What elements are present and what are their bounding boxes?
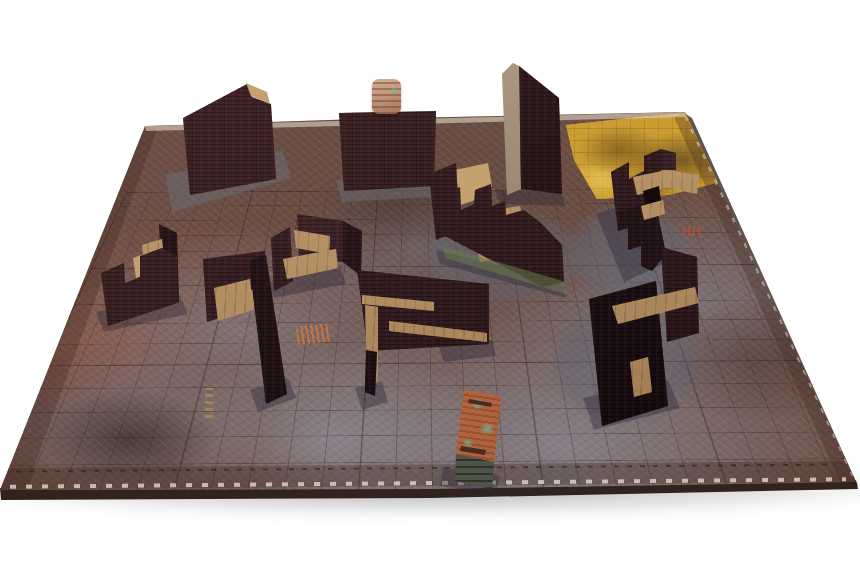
yellow-drip-mark bbox=[205, 388, 213, 418]
small-crate-on-wall bbox=[372, 79, 401, 114]
product-photo bbox=[0, 0, 860, 573]
orange-graffiti-mark bbox=[296, 323, 332, 344]
red-graffiti-mark bbox=[683, 226, 703, 235]
